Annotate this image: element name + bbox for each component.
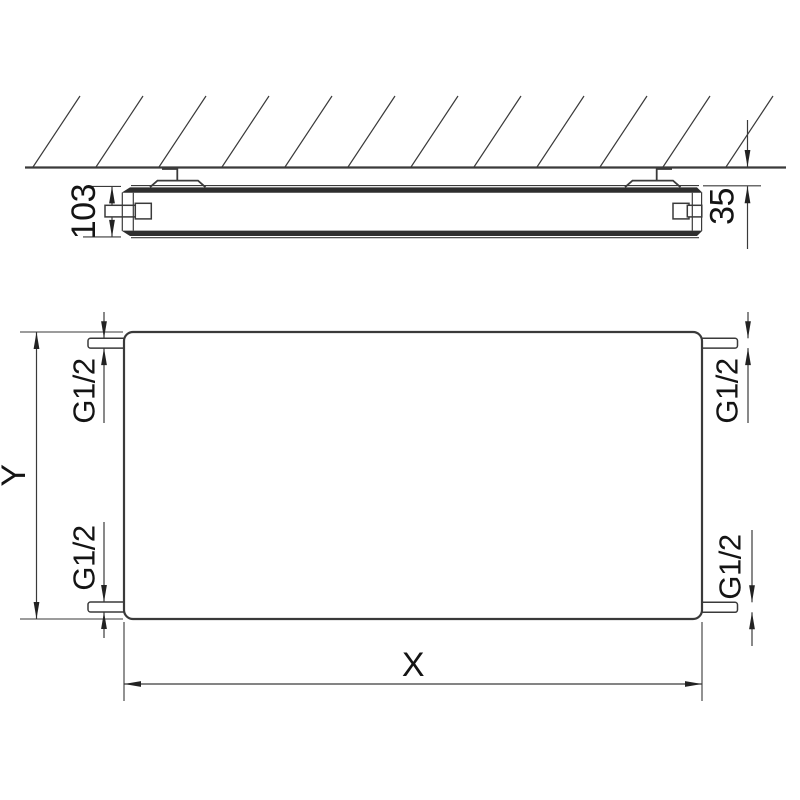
connection-fitting-left — [105, 203, 151, 219]
fitting-nut-left — [135, 203, 151, 219]
connection-stub-top-right — [700, 338, 738, 348]
bracket-base-right — [625, 181, 681, 188]
side-view-cross-section: 103 35 — [25, 96, 786, 249]
radiator-technical-drawing: 103 35 — [0, 0, 800, 800]
g12-dimension-bottom-right: G1/2 — [713, 530, 753, 646]
connection-stub-bottom-left — [88, 602, 126, 612]
height-dimension-label: Y — [0, 464, 33, 486]
fitting-nipple-right — [687, 205, 702, 217]
front-view: Y X G1/2 G1/2 G1/2 — [0, 312, 752, 701]
width-dimension-label: X — [402, 646, 424, 684]
g12-label-top-left: G1/2 — [67, 358, 102, 423]
wall-distance-label: 35 — [704, 188, 742, 225]
height-dimension-y: Y — [0, 332, 37, 619]
radiator-panel-outline — [124, 332, 702, 619]
depth-dimension-label: 103 — [65, 184, 103, 239]
radiator-side-body — [105, 186, 703, 238]
wall-distance-dimension-35: 35 — [703, 120, 761, 249]
drawing-canvas: 103 35 — [0, 0, 800, 800]
mounting-bracket-right — [625, 169, 681, 187]
g12-dimension-bottom-left: G1/2 — [67, 522, 105, 638]
connection-stub-bottom-right — [700, 602, 738, 612]
g12-label-top-right: G1/2 — [710, 358, 745, 423]
g12-dimension-top-left: G1/2 — [67, 312, 105, 424]
connection-fitting-right — [673, 203, 702, 219]
g12-label-bottom-left: G1/2 — [67, 525, 102, 590]
mounting-bracket-left — [150, 169, 206, 187]
g12-label-bottom-right: G1/2 — [713, 534, 748, 599]
width-dimension-x: X — [124, 646, 702, 684]
g12-dimension-top-right: G1/2 — [710, 312, 749, 424]
bracket-hook-left — [162, 169, 177, 181]
bracket-base-left — [150, 181, 206, 188]
radiator-back-panel — [122, 187, 703, 192]
radiator-front-panel — [122, 231, 703, 236]
connection-stub-top-left — [88, 338, 126, 348]
bracket-hook-right — [657, 169, 672, 181]
wall-hatching — [33, 96, 773, 167]
